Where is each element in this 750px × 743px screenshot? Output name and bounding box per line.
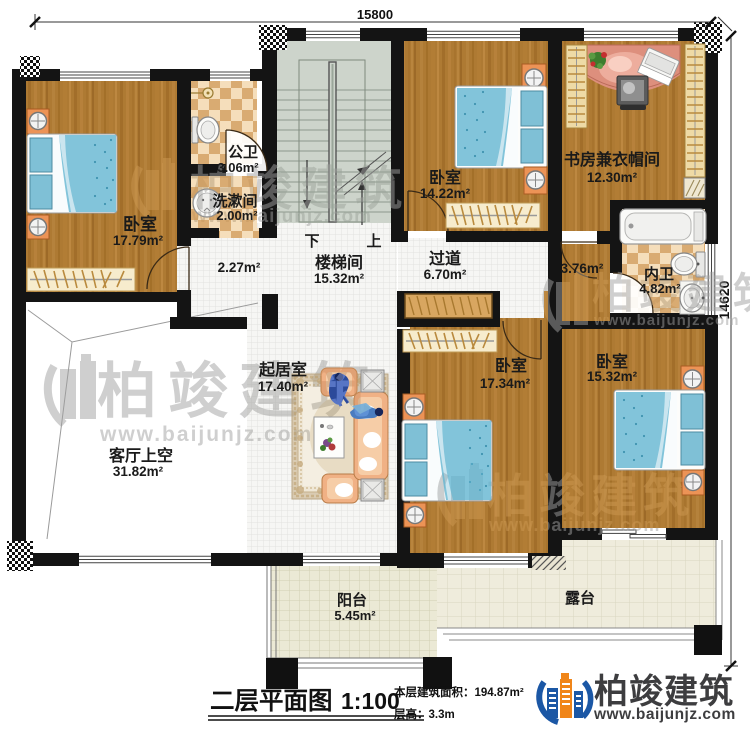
- svg-text:3.76m²: 3.76m²: [561, 261, 604, 276]
- svg-text:17.40m²: 17.40m²: [258, 379, 309, 394]
- svg-text:www.baijunjz.com: www.baijunjz.com: [488, 515, 660, 535]
- svg-text:www.baijunjz.com: www.baijunjz.com: [593, 312, 739, 329]
- svg-text:12.30m²: 12.30m²: [587, 170, 638, 185]
- svg-text:柏竣建筑: 柏竣建筑: [97, 358, 381, 425]
- svg-text:15.32m²: 15.32m²: [587, 369, 638, 384]
- svg-text:起居室: 起居室: [258, 360, 307, 379]
- svg-text:卧室: 卧室: [429, 168, 461, 187]
- svg-text:1:100: 1:100: [341, 688, 400, 714]
- svg-text:本层建筑面积：194.87m²: 本层建筑面积：194.87m²: [394, 685, 524, 699]
- svg-text:2.27m²: 2.27m²: [218, 260, 261, 275]
- svg-text:阳台: 阳台: [337, 591, 367, 609]
- svg-text:公卫: 公卫: [228, 144, 258, 161]
- svg-text:楼梯间: 楼梯间: [315, 253, 363, 272]
- svg-text:卧室: 卧室: [495, 356, 527, 375]
- svg-text:5.45m²: 5.45m²: [334, 608, 376, 623]
- svg-text:31.82m²: 31.82m²: [113, 464, 164, 479]
- svg-text:露台: 露台: [565, 589, 595, 607]
- svg-text:二层平面图: 二层平面图: [210, 688, 333, 715]
- svg-text:过道: 过道: [429, 249, 461, 268]
- svg-text:2.00m²: 2.00m²: [216, 208, 258, 223]
- svg-text:4.82m²: 4.82m²: [639, 281, 681, 296]
- svg-text:15800: 15800: [357, 7, 393, 22]
- svg-text:下: 下: [304, 233, 319, 250]
- svg-text:层高：3.3m: 层高：3.3m: [393, 707, 455, 721]
- svg-text:www.baijunjz.com: www.baijunjz.com: [99, 423, 313, 446]
- svg-text:www.baijunjz.com: www.baijunjz.com: [593, 706, 736, 723]
- svg-text:3.06m²: 3.06m²: [217, 160, 259, 175]
- svg-text:14.22m²: 14.22m²: [420, 186, 471, 201]
- svg-text:15.32m²: 15.32m²: [314, 271, 365, 286]
- svg-text:书房兼衣帽间: 书房兼衣帽间: [564, 150, 660, 169]
- svg-text:17.34m²: 17.34m²: [480, 376, 531, 391]
- svg-text:6.70m²: 6.70m²: [424, 267, 467, 282]
- svg-text:客厅上空: 客厅上空: [109, 446, 173, 465]
- svg-text:17.79m²: 17.79m²: [113, 233, 164, 248]
- svg-text:卧室: 卧室: [123, 214, 157, 234]
- svg-text:上: 上: [366, 233, 381, 250]
